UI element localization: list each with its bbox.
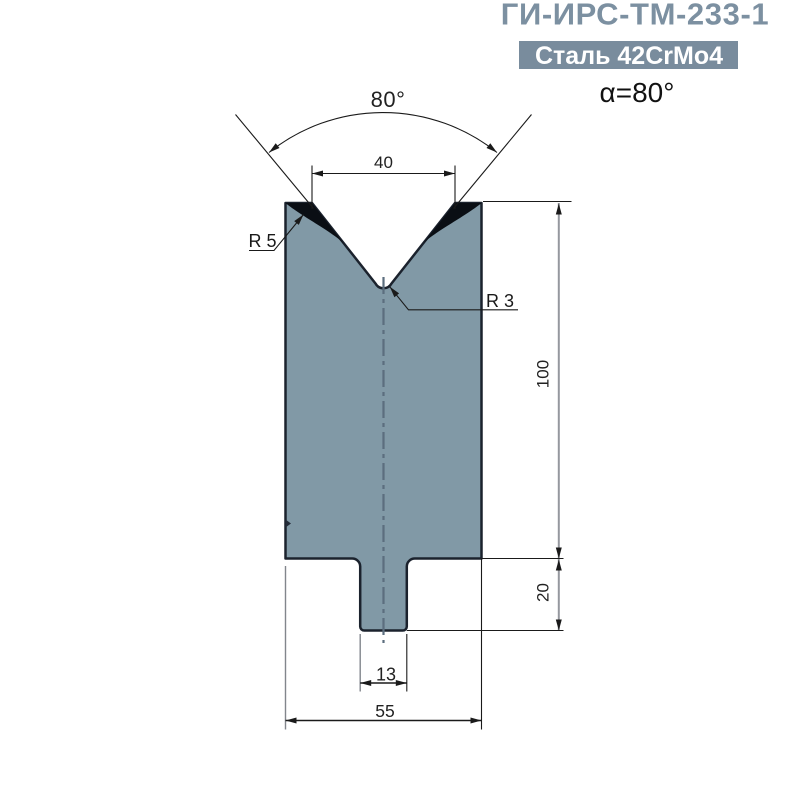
- svg-text:ГИ-ИРС-ТМ-233-1: ГИ-ИРС-ТМ-233-1: [501, 0, 769, 32]
- svg-text:Сталь 42CrMo4: Сталь 42CrMo4: [535, 42, 723, 70]
- svg-text:13: 13: [376, 665, 396, 685]
- svg-text:40: 40: [374, 153, 393, 172]
- svg-text:80°: 80°: [371, 87, 406, 112]
- svg-text:55: 55: [375, 701, 394, 721]
- svg-text:α=80°: α=80°: [600, 77, 675, 108]
- svg-text:20: 20: [534, 583, 553, 602]
- svg-text:100: 100: [534, 360, 553, 388]
- svg-text:R 3: R 3: [486, 291, 514, 311]
- svg-text:R 5: R 5: [249, 231, 277, 251]
